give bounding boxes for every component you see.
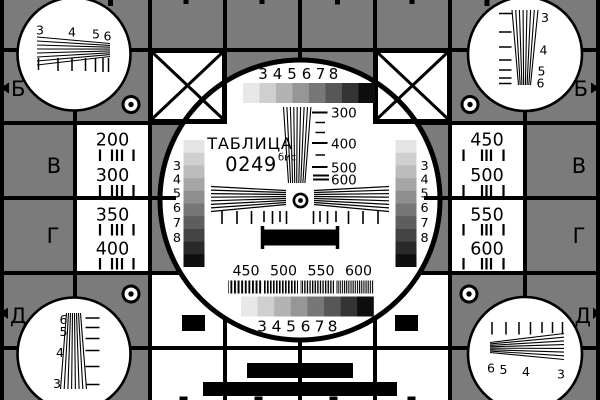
panel-value: 500 [470,166,503,186]
row-letter-d-left: Д [10,304,26,328]
svg-text:6: 6 [104,29,112,44]
top-scale-digit: 3 [258,65,268,83]
grating-600 [336,281,374,294]
registration-target-bottom-right [461,286,477,302]
svg-text:7: 7 [173,216,181,231]
svg-text:6: 6 [487,361,495,376]
grayscale-strip-bottom [241,297,374,317]
top-scale-digit: 4 [273,65,283,83]
frequency-label: 450 [232,264,259,280]
resolution-label: 600 [331,173,357,189]
resolution-labels: 300 400 500 600 [331,106,357,189]
registration-target-bottom-left [123,286,139,302]
card-number: 0249 [225,153,277,176]
svg-text:5: 5 [421,187,429,202]
row-letter-g-left: Г [47,224,60,248]
svg-text:3: 3 [557,367,565,382]
grating-450 [228,281,262,294]
svg-text:5: 5 [173,187,181,202]
svg-text:4: 4 [56,345,64,360]
corner-circle-top-left: 3 4 5 6 [18,0,131,111]
corner-circle-bottom-left: 6 5 4 3 [18,298,131,400]
svg-text:8: 8 [421,231,429,246]
grayscale-column-left [184,140,205,267]
panel-value: 400 [96,240,129,260]
grating-550 [300,281,334,294]
center-target [294,194,307,207]
svg-text:4: 4 [421,173,429,188]
svg-text:6: 6 [173,201,181,216]
panel-value: 350 [96,206,129,226]
panel-value: 600 [470,240,503,260]
right-scale-digits: 3 4 5 6 7 8 [421,159,429,246]
grating-500 [264,281,298,294]
svg-text:5: 5 [500,362,508,377]
svg-text:5: 5 [60,324,68,339]
row-letter-g-right: Г [573,224,586,248]
svg-text:3: 3 [53,376,61,391]
card-number-suffix: бис [278,153,296,164]
svg-text:5: 5 [286,318,296,336]
panel-value: 200 [96,131,129,151]
black-square-right [395,315,418,331]
svg-text:6: 6 [421,201,429,216]
grayscale-column-right [396,140,417,267]
card-title: ТАБЛИЦА [206,134,293,153]
svg-text:8: 8 [173,231,181,246]
left-scale-digits: 3 4 5 6 7 8 [173,159,181,246]
corner-circle-bottom-right: 6 5 4 3 [468,297,582,400]
black-square-left [182,315,205,331]
svg-text:5: 5 [92,27,100,42]
registration-target-top-left [123,97,139,113]
row-letter-v-left: В [47,154,61,178]
corner-circle-top-right: 3 4 5 6 [468,0,582,111]
svg-text:4: 4 [173,173,181,188]
frequency-label: 600 [345,264,372,280]
svg-text:4: 4 [68,25,76,40]
svg-text:3: 3 [36,23,44,38]
top-scale-digit: 6 [302,65,312,83]
svg-text:3: 3 [257,318,267,336]
svg-text:3: 3 [541,10,549,25]
test-card: 3 4 5 6 7 8 300 400 500 600 ТАБЛИЦА 0249… [0,0,600,400]
top-scale-digit: 7 [316,65,326,83]
svg-text:7: 7 [421,216,429,231]
panel-value: 300 [96,166,129,186]
svg-text:8: 8 [328,318,338,336]
svg-text:4: 4 [522,364,530,379]
frequency-gratings [228,281,374,294]
frequency-label: 500 [270,264,297,280]
test-card-canvas: 3 4 5 6 7 8 300 400 500 600 ТАБЛИЦА 0249… [0,0,600,400]
registration-target-top-right [462,97,478,113]
svg-text:6: 6 [301,318,311,336]
svg-text:6: 6 [537,76,545,91]
reflection-square-right [376,51,450,122]
grayscale-strip-top [243,83,375,103]
top-scale-digit: 5 [287,65,297,83]
panel-value: 450 [470,131,503,151]
row-letter-v-right: В [572,154,586,178]
svg-text:4: 4 [540,43,548,58]
top-scale-digit: 8 [329,65,339,83]
resolution-label: 400 [331,137,357,153]
row-letter-d-right: Д [575,304,591,328]
sync-bar-lower [203,382,397,396]
row-letter-b-right: Б [574,77,588,101]
row-letter-b-left: Б [11,77,25,101]
resolution-label: 300 [331,106,357,122]
reflection-square-left [151,51,225,122]
svg-text:7: 7 [315,318,325,336]
svg-text:4: 4 [272,318,282,336]
panel-value: 550 [470,206,503,226]
sync-bar-upper [247,363,353,378]
frequency-label: 550 [307,264,334,280]
